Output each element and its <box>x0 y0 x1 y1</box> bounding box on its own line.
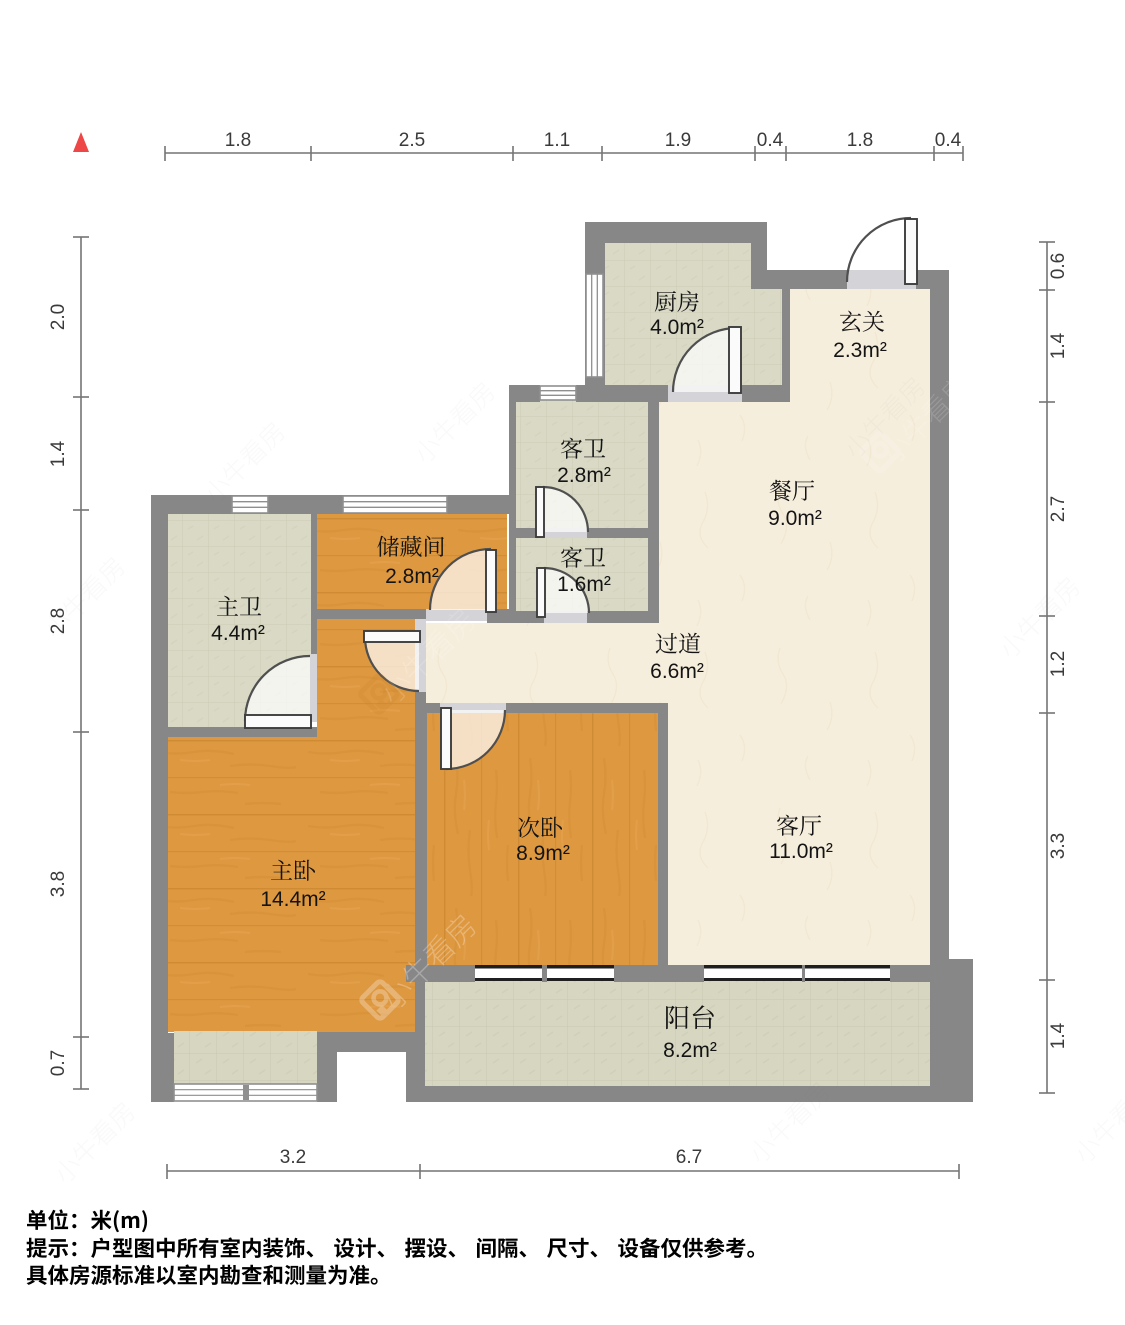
svg-text:2.8: 2.8 <box>48 608 69 634</box>
svg-text:1.4: 1.4 <box>1048 332 1069 359</box>
svg-text:8.9m²: 8.9m² <box>516 842 570 865</box>
svg-text:1.9: 1.9 <box>665 130 691 151</box>
svg-text:1.2: 1.2 <box>1048 651 1069 677</box>
svg-text:6.7: 6.7 <box>676 1147 702 1168</box>
svg-text:1.8: 1.8 <box>847 130 873 151</box>
svg-text:2.7: 2.7 <box>1048 496 1069 522</box>
svg-text:0.7: 0.7 <box>48 1050 69 1076</box>
svg-text:6.6m²: 6.6m² <box>650 660 704 683</box>
svg-text:1.8: 1.8 <box>225 130 251 151</box>
svg-text:14.4m²: 14.4m² <box>260 888 325 911</box>
svg-text:3.3: 3.3 <box>1048 833 1069 859</box>
svg-text:0.4: 0.4 <box>757 130 784 151</box>
svg-text:1.4: 1.4 <box>48 440 69 467</box>
svg-text:8.2m²: 8.2m² <box>663 1039 717 1062</box>
svg-text:11.0m²: 11.0m² <box>769 840 833 863</box>
svg-text:3.2: 3.2 <box>280 1147 306 1168</box>
svg-text:4.4m²: 4.4m² <box>211 622 265 645</box>
svg-text:4.0m²: 4.0m² <box>650 316 704 339</box>
svg-text:3.8: 3.8 <box>48 871 69 897</box>
svg-text:2.5: 2.5 <box>399 130 425 151</box>
svg-text:2.8m²: 2.8m² <box>557 464 611 487</box>
svg-text:0.4: 0.4 <box>935 130 962 151</box>
svg-text:2.8m²: 2.8m² <box>385 565 439 588</box>
svg-text:1.1: 1.1 <box>544 130 570 151</box>
svg-text:2.0: 2.0 <box>48 304 69 330</box>
svg-text:9.0m²: 9.0m² <box>768 507 822 530</box>
svg-text:1.4: 1.4 <box>1048 1022 1069 1049</box>
svg-text:2.3m²: 2.3m² <box>833 339 887 362</box>
svg-text:1.6m²: 1.6m² <box>557 573 611 596</box>
svg-text:0.6: 0.6 <box>1048 253 1069 279</box>
